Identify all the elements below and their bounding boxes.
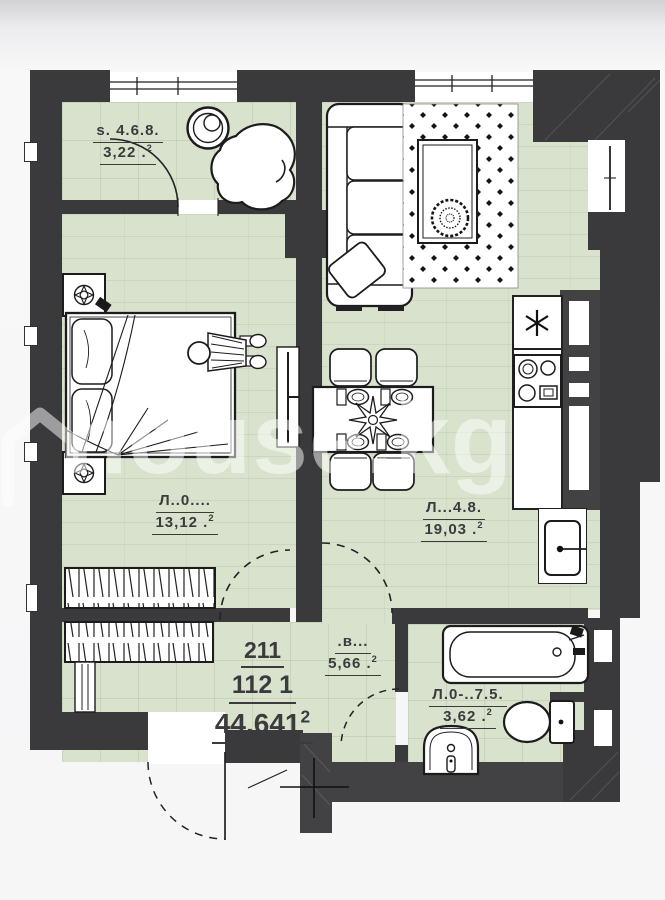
room-name: Л...4.8. <box>423 499 485 520</box>
wall-right-mid <box>600 250 660 482</box>
apartment-block: 112 1 <box>229 670 296 704</box>
balcony-window <box>588 140 625 212</box>
wall-right-band <box>588 212 660 250</box>
window-living <box>415 72 533 102</box>
apartment-number: 211 <box>241 636 284 668</box>
area-unit-sup: 2 <box>208 513 214 523</box>
apartment-info: 211 112 1 44,6412 <box>190 634 335 744</box>
apartment-total-area: 44,641 <box>215 708 301 739</box>
floor-door-gap-living <box>322 608 392 624</box>
wall-top-center <box>237 70 415 102</box>
room-area: 19,03 . <box>424 521 477 538</box>
wall-bathroom-top <box>392 608 588 624</box>
area-unit-sup: 2 <box>300 707 310 727</box>
area-unit-sup: 2 <box>477 520 483 530</box>
entrance-door-arc <box>148 762 225 839</box>
wall-top-right-block <box>533 70 660 142</box>
area-unit-sup: 2 <box>372 654 378 664</box>
room-label-bedroom: Л..0.... 13,12 .2 <box>130 492 240 535</box>
shaft-slot-2 <box>569 357 589 371</box>
wall-bedroom-bottom <box>62 608 290 622</box>
fridge-box <box>512 295 563 350</box>
room-name: Л..0.... <box>156 492 214 513</box>
entrance-door-leaf <box>225 752 287 840</box>
floor-bedroom <box>62 214 296 608</box>
shaft-slot-1 <box>569 301 589 345</box>
window-storage <box>110 72 237 102</box>
shaft-slot-4 <box>569 406 589 490</box>
wall-left <box>30 102 62 750</box>
wall-divider-column <box>285 210 332 258</box>
area-unit-sup: 2 <box>487 707 493 717</box>
wall-bottom-left <box>30 712 150 750</box>
wall-tie-2 <box>24 326 38 346</box>
door-opening-storage <box>178 200 218 214</box>
bath-wall-slot-1 <box>594 630 612 662</box>
room-name: s. 4.6.8. <box>93 122 162 143</box>
wall-tie-4 <box>26 584 38 612</box>
wall-top-left <box>30 70 110 102</box>
wall-tie-1 <box>24 142 38 162</box>
room-label-bathroom: Л.0-..7.5. 3,62 .2 <box>412 686 524 729</box>
area-unit-sup: 2 <box>147 143 153 153</box>
wall-toilet-stub <box>550 692 587 702</box>
room-name: .в... <box>335 633 372 654</box>
bath-wall-slot-2 <box>594 710 612 746</box>
wall-tie-3 <box>24 442 38 462</box>
room-name: Л.0-..7.5. <box>429 686 506 707</box>
shaft-slot-3 <box>569 383 589 397</box>
room-label-storage: s. 4.6.8. 3,22 .2 <box>78 122 178 165</box>
room-area: 3,22 . <box>103 144 147 161</box>
wall-right-lower <box>600 482 640 618</box>
floor-plan: s. 4.6.8. 3,22 .2 Л..0.... 13,12 .2 Л...… <box>0 0 665 900</box>
kitchen-sink-counter <box>538 508 587 584</box>
floor-plan-screenshot: s. 4.6.8. 3,22 .2 Л..0.... 13,12 .2 Л...… <box>0 0 665 900</box>
room-label-living: Л...4.8. 19,03 .2 <box>398 499 510 542</box>
wall-bedroom-living-divider <box>296 102 322 622</box>
room-area: 13,12 . <box>155 514 208 531</box>
room-area: 3,62 . <box>443 708 487 725</box>
